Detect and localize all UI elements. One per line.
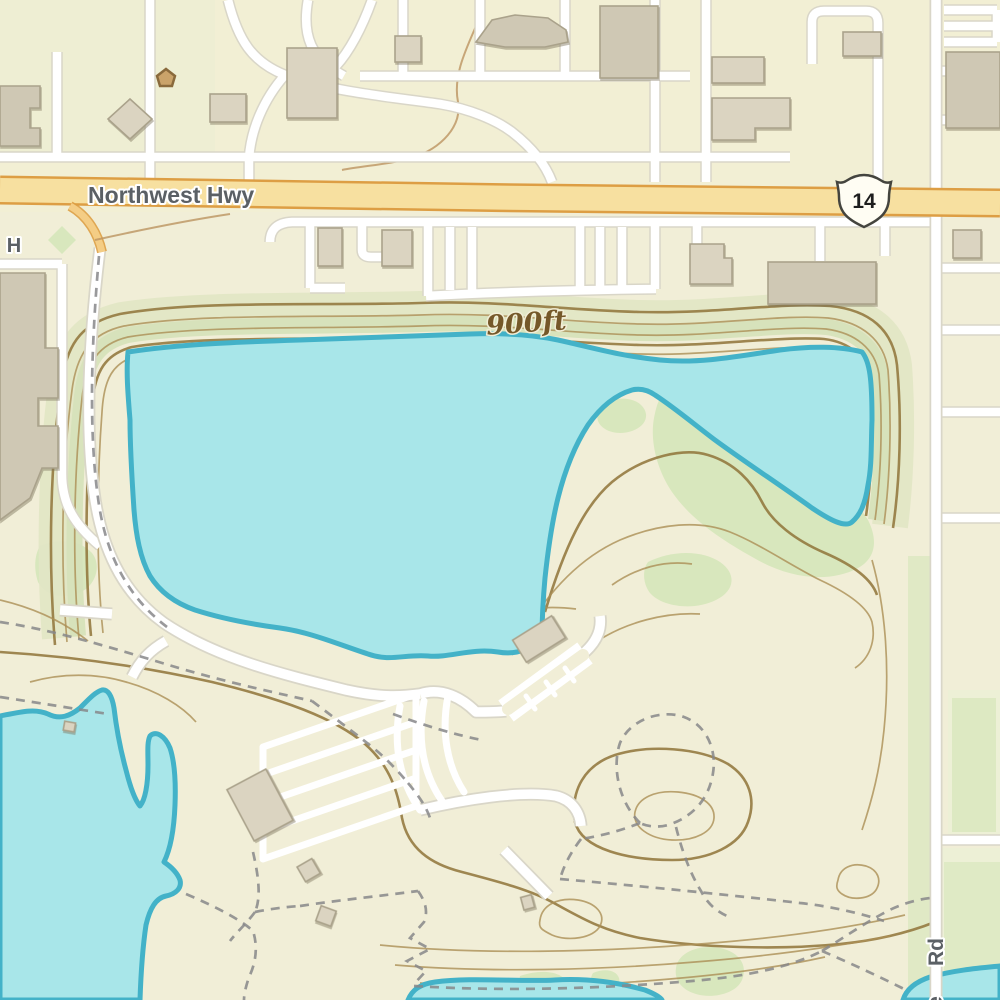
building: [318, 228, 342, 266]
building: [63, 721, 75, 732]
building: [521, 895, 535, 910]
building: [953, 230, 981, 258]
building: [946, 52, 1000, 128]
highway-name-label: Northwest Hwy: [88, 182, 254, 208]
green-block-east: [952, 698, 996, 832]
left-edge-road-label: H: [7, 235, 21, 257]
right-road-label-partial: e: [924, 996, 947, 1000]
building: [210, 94, 246, 122]
route-number-label: 14: [852, 190, 876, 213]
building: [600, 6, 658, 78]
green-strip-along-road: [908, 556, 930, 1000]
building: [287, 48, 337, 118]
map-canvas[interactable]: 14 Northwest Hwy 900ft Rd e H: [0, 0, 1000, 1000]
building: [843, 32, 881, 56]
contour-elevation-label: 900ft: [485, 305, 568, 342]
building: [382, 230, 412, 266]
building: [768, 262, 876, 304]
building: [712, 57, 764, 83]
grass-bottom-3: [676, 947, 744, 996]
topo-map[interactable]: 14 Northwest Hwy 900ft Rd e H: [0, 0, 1000, 1000]
woods-peninsula-south: [644, 553, 731, 606]
building: [395, 36, 421, 62]
right-road-label: Rd: [925, 938, 948, 966]
